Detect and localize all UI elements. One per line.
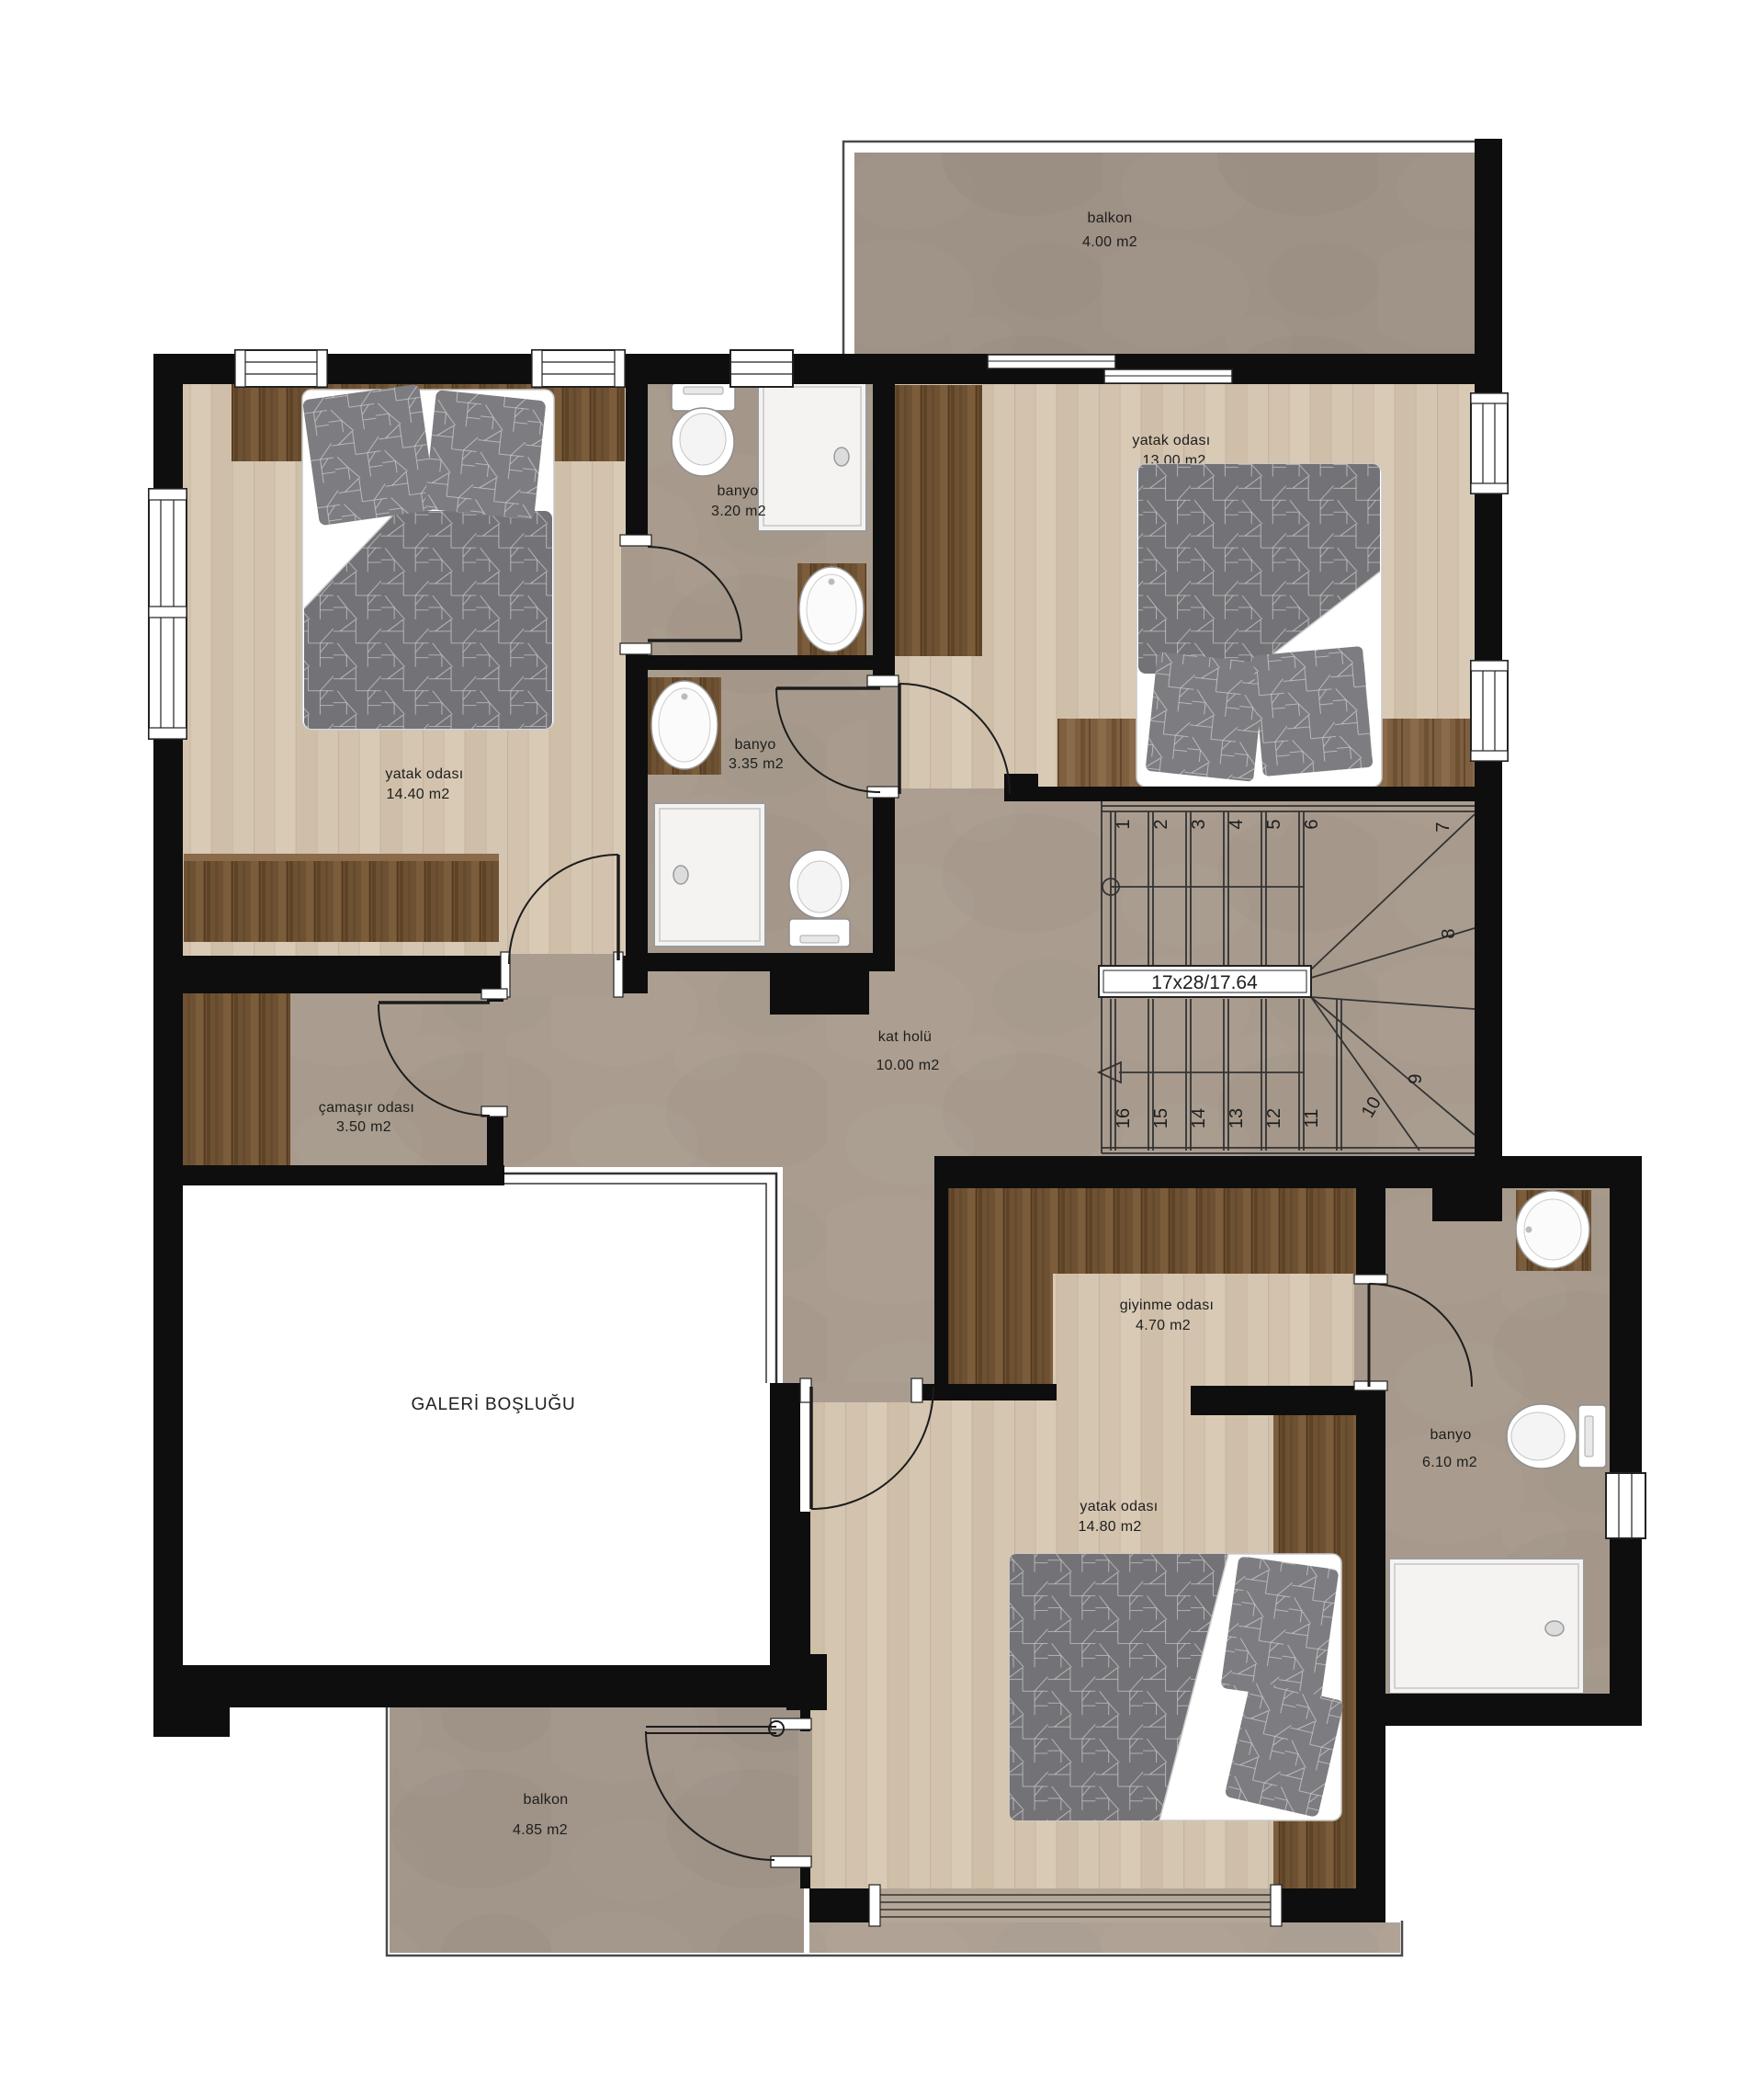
svg-text:4.00 m2: 4.00 m2: [1082, 234, 1137, 250]
svg-text:10.00 m2: 10.00 m2: [876, 1058, 939, 1073]
svg-text:4.85 m2: 4.85 m2: [513, 1822, 568, 1838]
svg-text:8: 8: [1439, 928, 1459, 938]
svg-text:15: 15: [1151, 1108, 1171, 1128]
svg-text:14: 14: [1189, 1108, 1209, 1128]
svg-text:4: 4: [1227, 819, 1247, 829]
svg-text:yatak odası: yatak odası: [1132, 433, 1210, 448]
svg-text:3.20 m2: 3.20 m2: [711, 504, 766, 519]
svg-text:16: 16: [1114, 1108, 1134, 1128]
svg-text:9: 9: [1406, 1073, 1426, 1083]
svg-text:balkon: balkon: [524, 1792, 569, 1808]
svg-text:17x28/17.64: 17x28/17.64: [1151, 972, 1258, 993]
svg-text:7: 7: [1433, 822, 1453, 832]
svg-text:12: 12: [1264, 1108, 1284, 1128]
svg-text:4.70 m2: 4.70 m2: [1136, 1318, 1191, 1333]
svg-text:banyo: banyo: [1430, 1427, 1471, 1443]
svg-text:balkon: balkon: [1088, 210, 1133, 226]
svg-text:banyo: banyo: [734, 737, 775, 753]
svg-text:3.35 m2: 3.35 m2: [729, 756, 784, 772]
svg-text:çamaşır odası: çamaşır odası: [319, 1100, 414, 1116]
svg-text:kat holü: kat holü: [878, 1029, 932, 1045]
svg-text:6: 6: [1302, 819, 1322, 829]
svg-text:1: 1: [1114, 819, 1134, 829]
svg-text:yatak odası: yatak odası: [1080, 1499, 1158, 1514]
svg-text:3.50 m2: 3.50 m2: [336, 1119, 391, 1135]
svg-text:6.10 m2: 6.10 m2: [1422, 1455, 1477, 1470]
svg-text:5: 5: [1264, 819, 1284, 829]
svg-text:13: 13: [1227, 1108, 1247, 1128]
svg-text:14.40 m2: 14.40 m2: [386, 787, 449, 802]
svg-text:3: 3: [1189, 819, 1209, 829]
svg-text:11: 11: [1302, 1109, 1322, 1128]
svg-text:GALERİ BOŞLUĞU: GALERİ BOŞLUĞU: [411, 1394, 575, 1414]
svg-text:14.80 m2: 14.80 m2: [1078, 1519, 1141, 1535]
svg-text:banyo: banyo: [717, 483, 758, 499]
svg-text:giyinme odası: giyinme odası: [1120, 1298, 1215, 1313]
svg-text:2: 2: [1151, 819, 1171, 829]
svg-text:yatak odası: yatak odası: [385, 766, 463, 782]
